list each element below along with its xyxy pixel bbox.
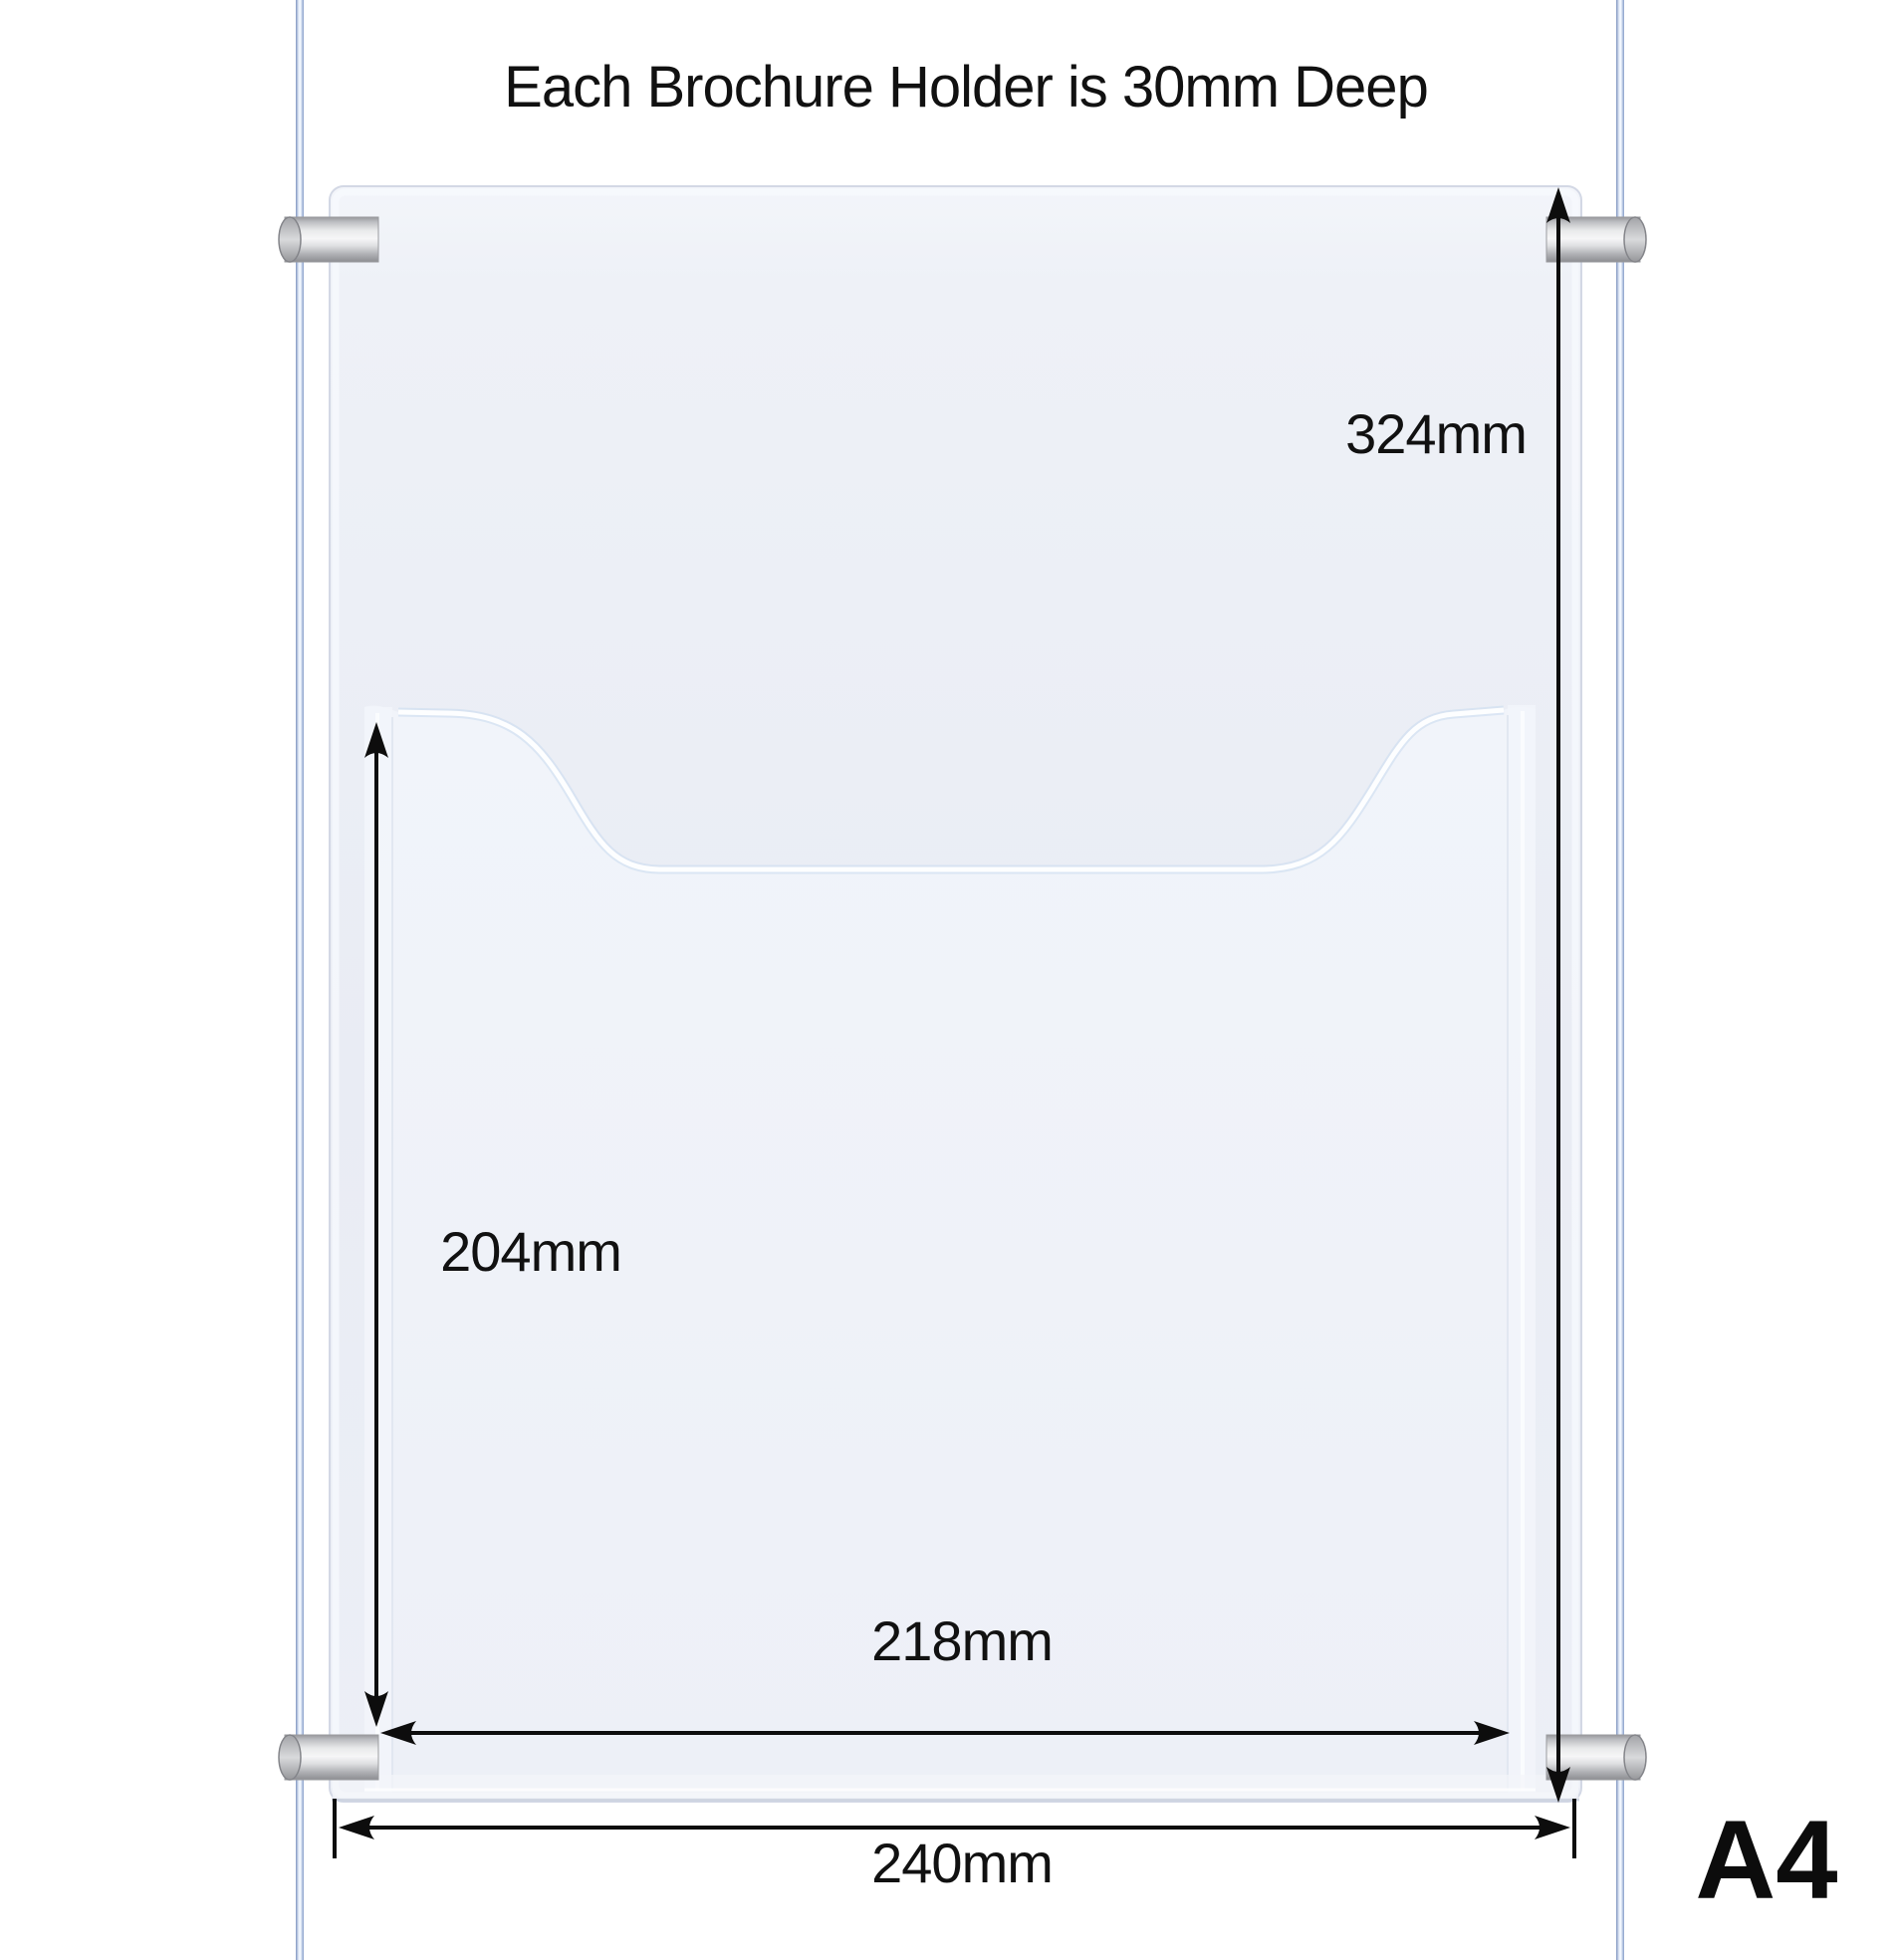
pocket-height-label: 204mm [440, 1224, 621, 1280]
overall-width-label: 240mm [871, 1836, 1053, 1891]
paper-size-badge: A4 [1695, 1805, 1837, 1916]
left-cable [296, 0, 304, 1960]
overall-height-label: 324mm [1345, 406, 1527, 462]
pocket-width-label: 218mm [871, 1613, 1053, 1669]
cable-gripper-bottom-left [279, 1735, 378, 1780]
cable-gripper-top-left [279, 217, 378, 262]
brochure-holder-dimension-diagram: Each Brochure Holder is 30mm Deep 324mm … [0, 0, 1897, 1960]
cable-gripper-top-right [1546, 217, 1646, 262]
right-cable [1616, 0, 1624, 1960]
diagram-title: Each Brochure Holder is 30mm Deep [504, 59, 1428, 117]
